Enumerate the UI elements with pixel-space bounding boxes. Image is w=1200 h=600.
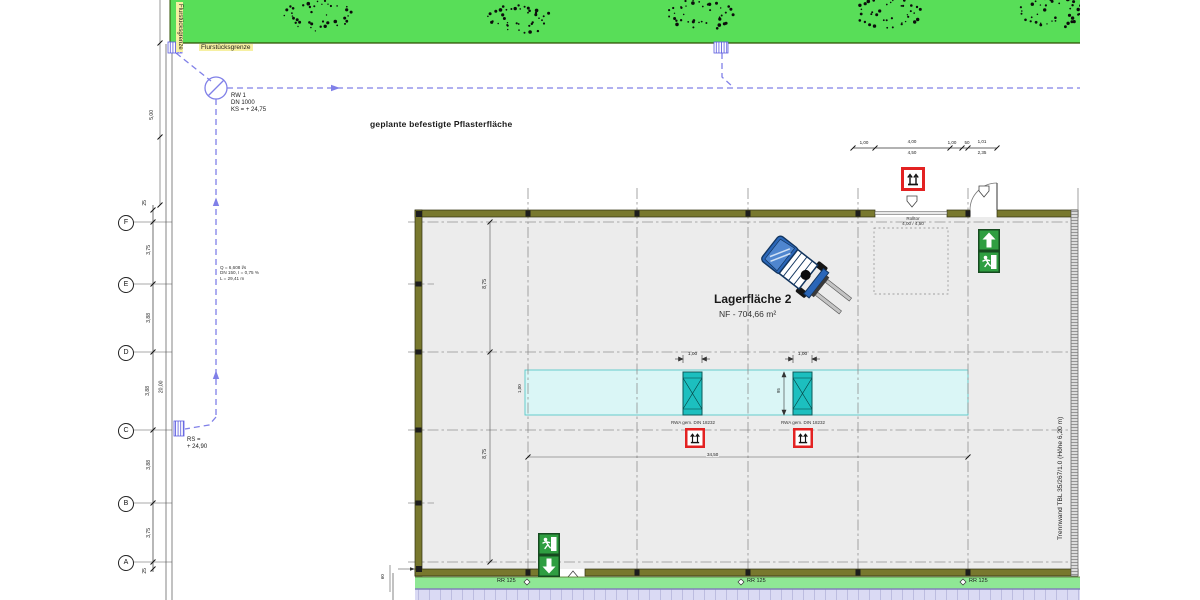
- hall-height-dim: 8,75: [483, 279, 489, 289]
- grid-dim: 3,88: [146, 386, 152, 396]
- top-dim: 1,01: [974, 139, 990, 144]
- rollup-door-label: Rolltor 4,00 / 4,50: [893, 216, 933, 227]
- escape-arrow-down-icon: [538, 555, 560, 582]
- grid-bubble-F: F: [118, 215, 134, 231]
- roof-drain-label: RR 125: [747, 578, 766, 584]
- rwa-trigger-icon: [793, 428, 813, 453]
- grid-overall-dim: 20,00: [159, 381, 165, 394]
- grid-bubble-B: B: [118, 496, 134, 512]
- rwa-vent-label: RWA gem. DIN 18232: [772, 420, 834, 425]
- grid-bubble-E: E: [118, 277, 134, 293]
- boundary-label: Flurstücksgrenze: [199, 44, 253, 51]
- roof-drain-label: RR 125: [969, 578, 988, 584]
- rwa-width-dim: 1,00: [677, 352, 708, 358]
- smoke-band: [525, 370, 968, 415]
- grid-bubble-A: A: [118, 555, 134, 571]
- door-direction-arrow-down: [907, 196, 917, 207]
- smoke-band-dim: 1,00: [517, 384, 522, 393]
- grid-bubble-C: C: [118, 423, 134, 439]
- emergency-exit-icon: [978, 251, 1000, 278]
- grid-bubble-D: D: [118, 345, 134, 361]
- top-dim: 4,00: [904, 139, 920, 144]
- paving-strip: [415, 589, 1080, 600]
- rollup-door-leaf: [875, 212, 947, 215]
- site-boundary-lines: [134, 0, 172, 600]
- rwa-width-dim: 1,00: [787, 352, 818, 358]
- forklift-symbol: [745, 230, 869, 327]
- roof-drain-label: RR 125: [497, 578, 516, 584]
- rwa-trigger-icon: [901, 167, 925, 196]
- grid-dim: 25: [143, 200, 149, 206]
- top-dim: 2,35: [974, 150, 990, 155]
- grid-dim: 25: [143, 568, 149, 574]
- plan-linework: [0, 0, 1200, 600]
- top-dim: 4,50: [904, 150, 920, 155]
- grid-dim: 3,88: [147, 460, 153, 470]
- rwa-trigger-icon: [685, 428, 705, 453]
- green-buffer-strip: [170, 0, 1088, 43]
- partition-wall-label: Trennwand TBL 35/267/1.0 (Höhe 6,20 m): [1057, 417, 1065, 540]
- hall-height-dim: 8,75: [483, 449, 489, 459]
- site-outer-dim: 5,00: [150, 110, 156, 120]
- grid-dim: 3,75: [147, 245, 153, 255]
- paving-area-label: geplante befestigte Pflasterfläche: [370, 120, 512, 130]
- boundary-label-vertical: Flurstücksgrenze: [176, 2, 183, 52]
- rwa-vent-label: RWA gem. DIN 18232: [662, 420, 724, 425]
- top-dim: 1,00: [856, 140, 872, 145]
- top-dim: 1,00: [944, 140, 960, 145]
- manhole-label: RW 1 DN 1000 KS = + 24,75: [231, 93, 266, 114]
- top-dim: 50: [962, 140, 972, 145]
- vent-gap-dim: 95: [776, 388, 781, 393]
- pipe-spec-label: Q = 6,608 l/s DN 150, I = 0,75 % L = 29,…: [220, 265, 259, 281]
- outlet-label: RS = + 24,90: [187, 437, 207, 451]
- site-plan-drawing: Flurstücksgrenze Flurstücksgrenze RW 1 D…: [0, 0, 1200, 600]
- door-direction-arrow-down: [979, 186, 989, 197]
- grid-dim: 3,75: [147, 528, 153, 538]
- edge-offset-dim: 60: [380, 574, 385, 579]
- hall-width-dim: 34,50: [706, 452, 719, 457]
- grid-dim: 3,88: [147, 313, 153, 323]
